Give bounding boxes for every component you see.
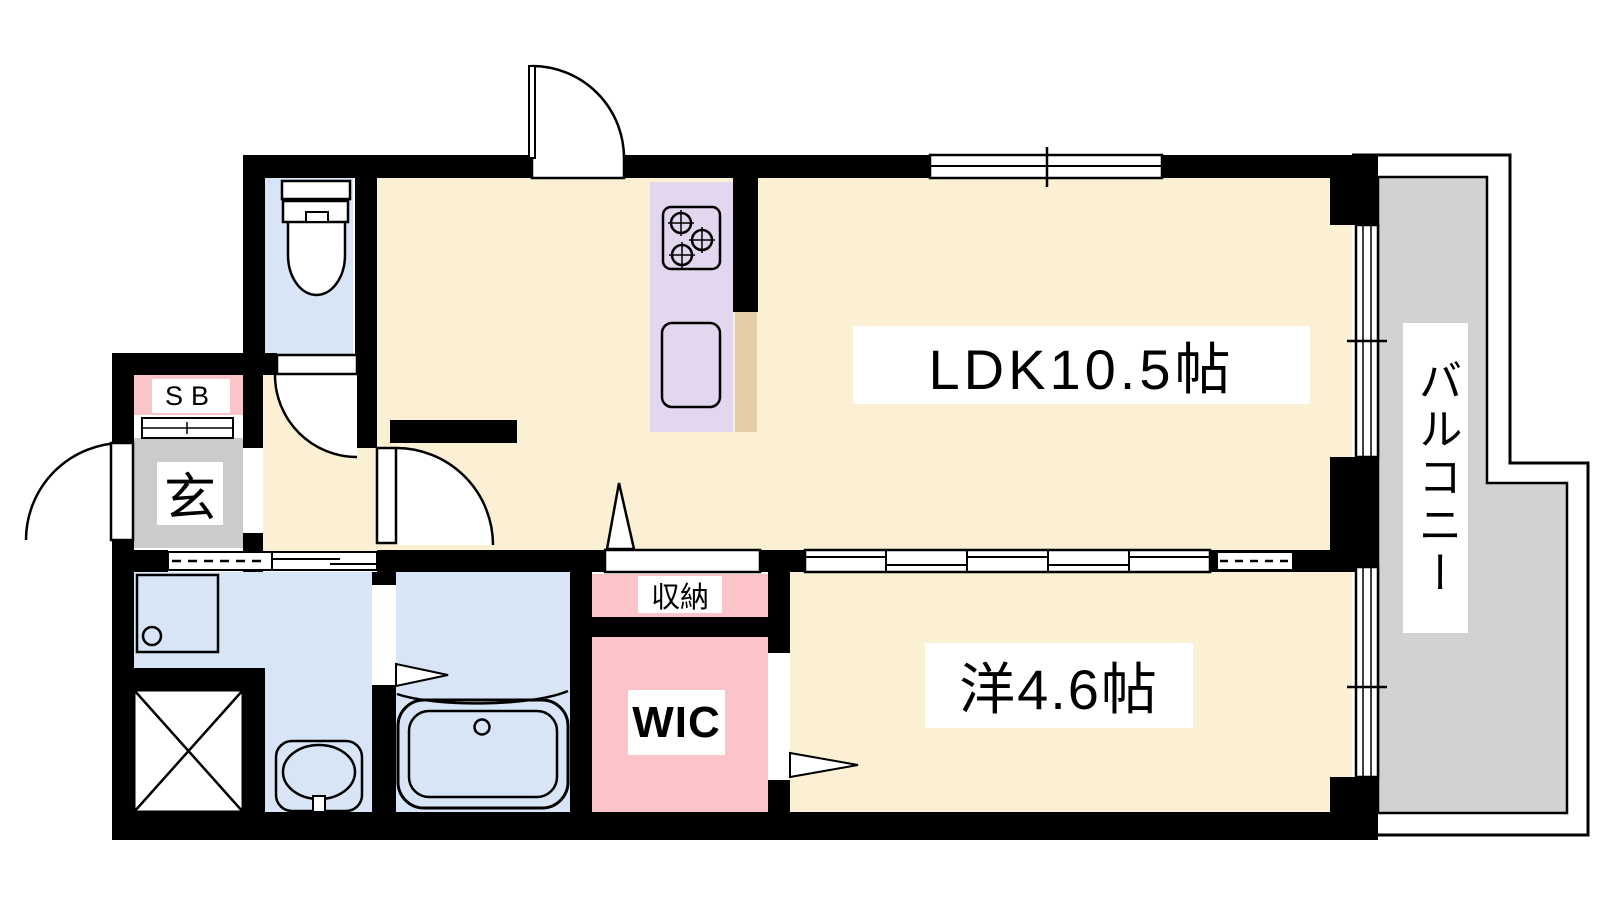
entrance-label: 玄 xyxy=(157,462,223,525)
shoe-cabinet-icon xyxy=(142,418,233,438)
toilet-icon xyxy=(282,181,350,295)
washing-machine-pan-icon xyxy=(137,575,218,652)
plan-lineart xyxy=(0,0,1600,900)
entrance-step-dashed-icon xyxy=(168,552,272,570)
kitchen-stove-icon xyxy=(663,207,720,269)
ldk-label: LDK10.5帖 xyxy=(853,326,1310,404)
wic-door-icon xyxy=(790,753,858,777)
bedroom-sliding-doors-icon xyxy=(805,550,1210,572)
floor-plan: LDK10.5帖 洋4.6帖 バルコニー SB 玄 収納 WIC xyxy=(0,0,1600,900)
shoe-box-label: SB xyxy=(152,379,230,413)
washroom-sliding-door-icon xyxy=(272,552,377,570)
ldk-dashed-opening-icon xyxy=(1218,553,1292,569)
ldk-door-swing-icon xyxy=(377,448,493,545)
washbasin-icon xyxy=(276,741,362,812)
bathroom-door-icon xyxy=(396,664,448,686)
balcony-label: バルコニー xyxy=(1403,323,1468,633)
top-window-icon xyxy=(930,147,1162,187)
storage-label: 収納 xyxy=(638,576,722,613)
storage-door-icon xyxy=(605,483,760,572)
toilet-door-swing-icon xyxy=(275,355,357,457)
entrance-door-swing-icon xyxy=(26,443,133,540)
wic-label: WIC xyxy=(628,690,725,755)
service-door-swing-icon xyxy=(529,66,624,178)
bathtub-icon xyxy=(397,691,568,808)
pipe-shaft-x-icon xyxy=(134,690,243,812)
balcony-area xyxy=(1352,155,1588,835)
kitchen-sink-icon xyxy=(662,323,720,407)
western-room-label: 洋4.6帖 xyxy=(925,643,1193,728)
